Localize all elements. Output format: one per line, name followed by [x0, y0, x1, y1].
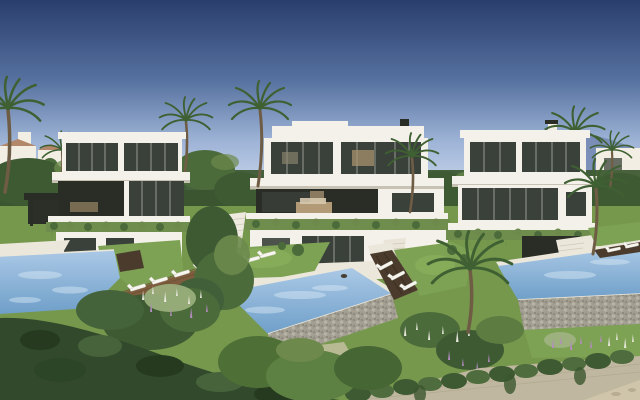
swimmer — [341, 274, 347, 278]
render-scene — [0, 0, 640, 400]
gabion-wall-right — [518, 294, 640, 330]
villa-render-image: Photorealistic render of three modern wh… — [0, 0, 640, 400]
